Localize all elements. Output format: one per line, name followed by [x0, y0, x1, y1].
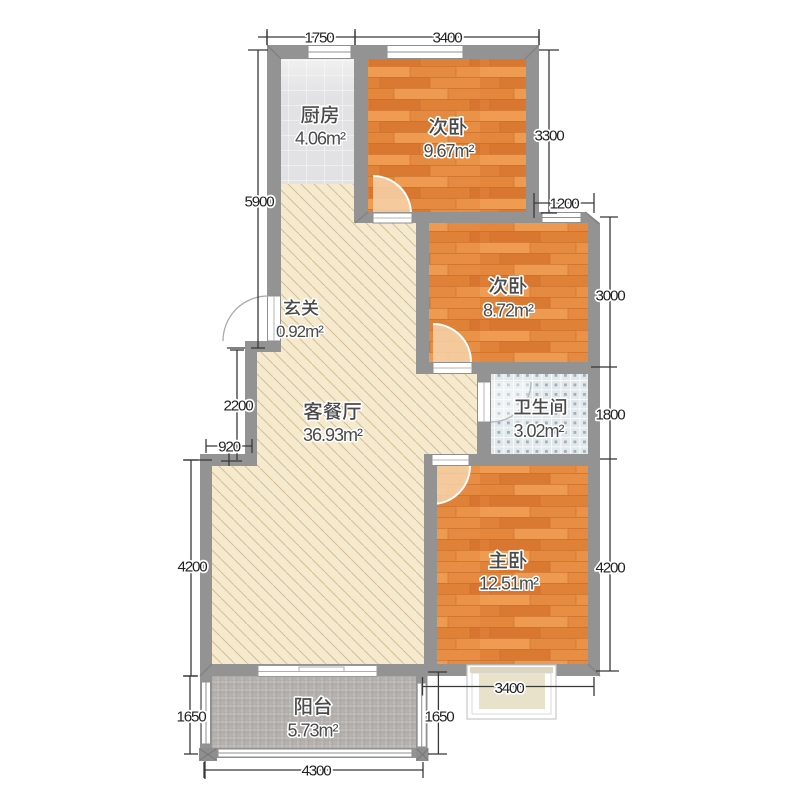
svg-text:4.06m²: 4.06m²: [295, 129, 346, 149]
svg-text:1650: 1650: [425, 708, 455, 725]
svg-text:36.93m²: 36.93m²: [303, 425, 363, 445]
svg-text:3400: 3400: [495, 680, 525, 697]
svg-text:12.51m²: 12.51m²: [479, 574, 539, 594]
svg-text:1650: 1650: [177, 708, 207, 725]
svg-text:3.02m²: 3.02m²: [513, 421, 564, 441]
svg-text:920: 920: [218, 438, 240, 455]
svg-text:1200: 1200: [550, 195, 580, 212]
svg-text:8.72m²: 8.72m²: [483, 301, 534, 321]
svg-text:5.73m²: 5.73m²: [287, 721, 338, 741]
svg-text:2200: 2200: [224, 397, 254, 414]
svg-text:4300: 4300: [302, 762, 332, 779]
svg-text:3000: 3000: [596, 287, 626, 304]
svg-text:1750: 1750: [305, 29, 335, 46]
svg-text:3300: 3300: [535, 127, 565, 144]
svg-text:9.67m²: 9.67m²: [423, 141, 474, 161]
svg-text:4200: 4200: [596, 559, 626, 576]
svg-text:5900: 5900: [245, 193, 275, 210]
svg-text:4200: 4200: [178, 558, 208, 575]
svg-text:1800: 1800: [596, 406, 626, 423]
svg-text:3400: 3400: [433, 29, 463, 46]
svg-text:0.92m²: 0.92m²: [276, 322, 324, 341]
